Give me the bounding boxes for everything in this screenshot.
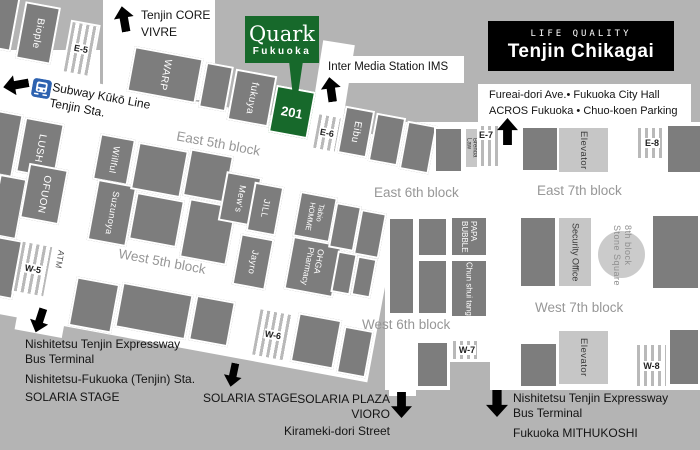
street-label-west-6th: West 6th block	[362, 317, 450, 332]
label-solaria-plaza-group: SOLARIA PLAZA VIORO Kirameki-dori Street	[180, 392, 390, 439]
label-tenjin-core-vivre: Tenjin CORE VIVRE	[141, 7, 210, 41]
outside-patch	[450, 362, 490, 392]
store-block	[651, 214, 700, 290]
store-block	[666, 124, 700, 174]
exit-w7: W-7	[451, 339, 483, 361]
quark-callout: Quark Fukuoka	[245, 16, 319, 63]
map-tagline: LIFE QUALITY	[530, 29, 631, 39]
subway-icon	[30, 77, 52, 99]
store-block	[68, 276, 120, 333]
store-block-chun-shui-tang: Chun shui tang	[450, 259, 488, 318]
label-se-bus-terminal: Nishitetsu Tenjin Expressway Bus Termina…	[513, 391, 668, 421]
store-block	[417, 259, 448, 315]
street-label-west-7th: West 7th block	[535, 300, 623, 315]
exit-e8: E-8	[636, 126, 668, 160]
store-block	[130, 142, 189, 198]
label-nishitetsu-station: Nishitetsu-Fukuoka (Tenjin) Sta.	[25, 372, 195, 387]
store-block	[434, 127, 463, 173]
label-ims: Inter Media Station IMS	[328, 60, 448, 75]
store-block	[417, 217, 448, 257]
street-label-east-6th: East 6th block	[374, 185, 459, 200]
map-title: Tenjin Chikagai	[508, 41, 655, 63]
exit-e7-label: E-7	[478, 130, 494, 140]
arrow-down-solaria-stage	[222, 361, 245, 388]
store-block	[668, 328, 700, 386]
store-block	[416, 341, 449, 388]
store-block	[521, 126, 559, 172]
store-block	[128, 192, 185, 248]
label-sw-bus-terminal: Nishitetsu Tenjin Expressway Bus Termina…	[25, 337, 180, 367]
exit-w8: W-8	[635, 343, 668, 388]
arrow-down-bus-terminal-se	[486, 390, 508, 417]
map-title-box: LIFE QUALITY Tenjin Chikagai	[488, 21, 674, 71]
store-block	[388, 217, 415, 315]
elevator-north: Elevator	[557, 126, 610, 174]
quark-location: Fukuoka	[253, 46, 312, 57]
stone-square-label: 8th blockStone Square	[600, 219, 644, 293]
store-block-brenda-law: BrendaLaw	[464, 127, 479, 169]
tenjin-chikagai-map: Biople E-5 WARP fukuya 201 E-6 Eibu Bren…	[0, 0, 700, 450]
store-block	[519, 216, 557, 288]
store-block	[188, 295, 236, 348]
store-block-papa-bubble: PAPABUBBLE	[450, 216, 488, 257]
quark-brand: Quark	[249, 23, 315, 45]
label-fukuoka-mitsukoshi: Fukuoka MITHUKOSHI	[513, 426, 638, 441]
store-block	[290, 312, 342, 369]
label-solaria-stage-1: SOLARIA STAGE	[25, 390, 119, 405]
label-fureai: Fureai-dori Ave.• Fukuoka City Hall ACRO…	[489, 87, 678, 119]
security-office: Security Office	[557, 216, 593, 288]
street-label-east-7th: East 7th block	[537, 183, 622, 198]
elevator-south: Elevator	[557, 329, 610, 386]
store-block	[519, 342, 558, 388]
